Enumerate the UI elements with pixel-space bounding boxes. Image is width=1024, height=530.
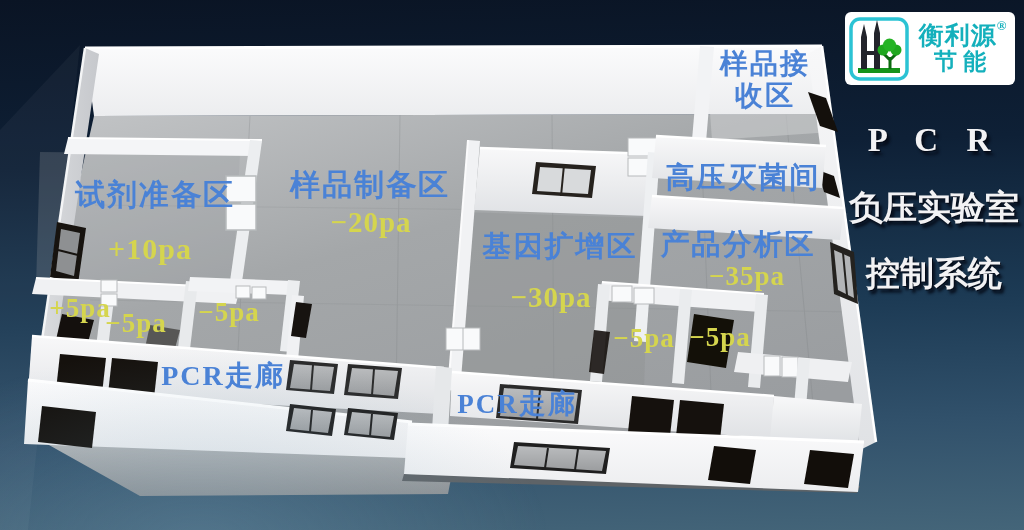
- pressure-label-gene-amp: −30pa: [510, 281, 591, 314]
- room-label-product-analysis: 产品分析区: [661, 228, 816, 261]
- brand-logo: 衡利源® 节能: [845, 12, 1015, 85]
- brand-text-block: 衡利源® 节能: [911, 23, 1015, 73]
- room-label-gene-amp: 基因扩增区: [483, 230, 638, 263]
- brand-reg-mark: ®: [997, 18, 1008, 33]
- brand-subtitle: 节能: [911, 50, 1015, 74]
- pressure-label-product-analysis: −35pa: [709, 261, 785, 292]
- title-pcr: P C R: [868, 122, 1001, 159]
- room-label-autoclave: 高压灭菌间: [666, 161, 821, 194]
- title-negative-pressure-lab: 负压实验室: [849, 185, 1019, 231]
- pressure-label-sample-prep: −20pa: [330, 206, 411, 239]
- room-label-sample-prep: 样品制备区: [290, 168, 450, 203]
- room-label-reagent: 试剂准备区: [75, 178, 235, 213]
- pcr-lab-control-screen: 试剂准备区 +10pa 样品制备区 −20pa 基因扩增区 −30pa 高压灭菌…: [0, 0, 1024, 530]
- room-label-sample-receiving: 样品接收区: [719, 48, 811, 112]
- title-control-system: 控制系统: [866, 251, 1002, 297]
- pressure-label-buffer-5: −5pa: [689, 322, 750, 353]
- pressure-label-buffer-1: +5pa: [49, 293, 110, 324]
- corridor-label-upper: PCR走廊: [161, 360, 285, 392]
- pressure-label-buffer-2: −5pa: [105, 308, 166, 339]
- pressure-label-buffer-3: −5pa: [198, 297, 259, 328]
- corridor-label-lower: PCR走廊: [457, 389, 577, 420]
- pressure-label-reagent: +10pa: [108, 232, 192, 267]
- brand-logo-icon: [849, 17, 909, 81]
- pressure-label-buffer-4: −5pa: [613, 323, 674, 354]
- brand-name: 衡利源: [919, 22, 997, 49]
